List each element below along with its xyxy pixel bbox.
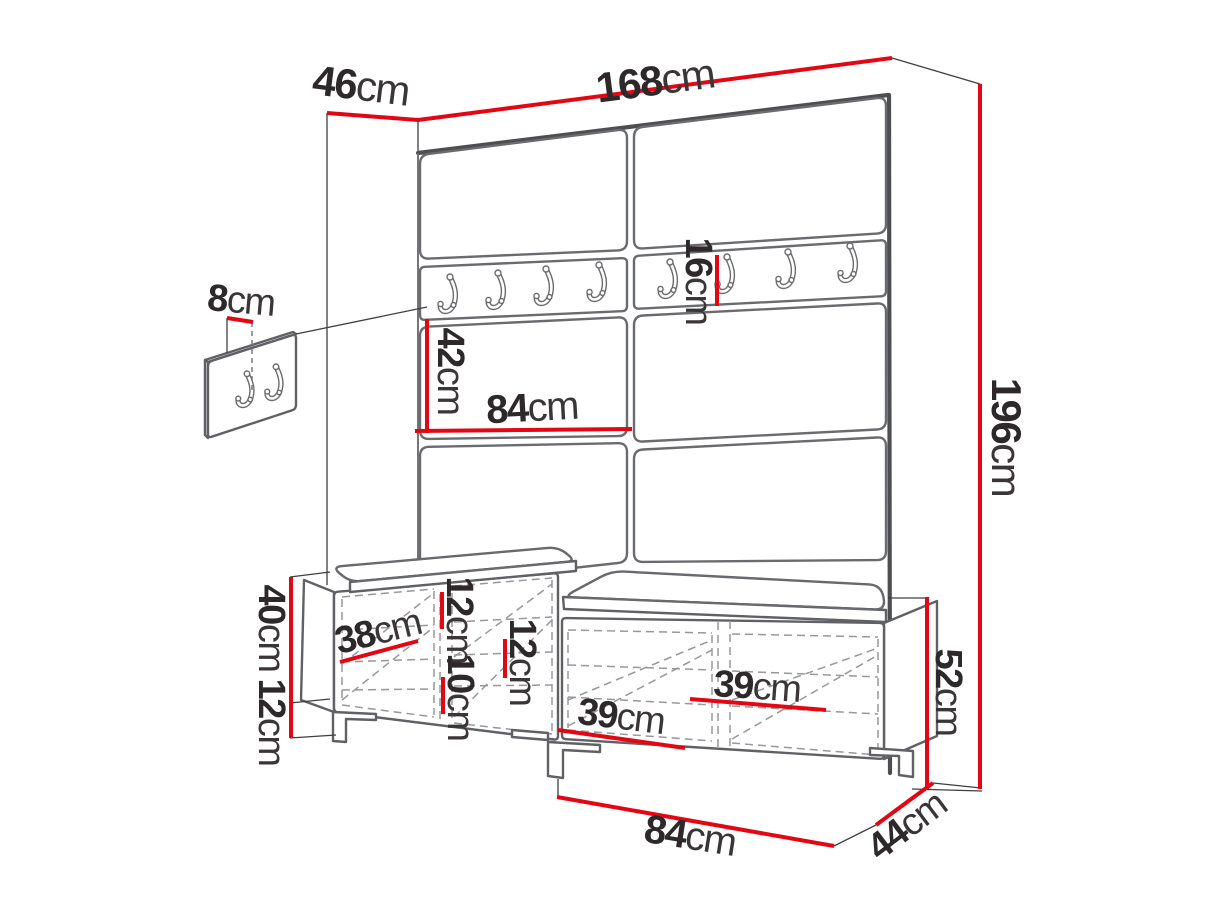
dimension-label: 10cm	[439, 654, 481, 741]
dimension-label: 84cm	[485, 384, 579, 433]
dimension-label: 12cm	[438, 577, 480, 664]
dimension-shelf-spacing-12-left: 12cm	[438, 577, 480, 664]
dimension-shelf-spacing-10: 10cm	[439, 654, 481, 741]
dimension-label: 16cm	[677, 238, 719, 325]
dimension-label: 12cm	[250, 679, 292, 766]
furniture-dimension-diagram: 168cm46cm196cm16cm42cm84cm8cm40cm12cm38c…	[0, 0, 1214, 911]
dimension-wall-hook-spacing: 8cm	[206, 277, 277, 325]
dimension-panel-depth: 46cm	[310, 56, 418, 120]
dimension-label: 44cm	[860, 783, 955, 869]
dimension-leg-height: 12cm	[250, 679, 292, 766]
dimension-label: 39cm	[712, 663, 802, 711]
dimension-label: 84cm	[641, 807, 739, 865]
shoe-bench	[301, 548, 937, 778]
wall-hook-detail-panel	[205, 307, 427, 438]
upholstered-panels	[420, 98, 886, 584]
dimension-label: 42cm	[429, 328, 471, 415]
dimension-panel-height: 196cm	[980, 84, 1031, 789]
dimension-label: 196cm	[984, 378, 1031, 497]
dimension-hook-rail-height: 16cm	[677, 238, 719, 325]
dimension-label: 46cm	[310, 56, 412, 114]
dimension-bench-depth: 44cm	[860, 783, 955, 869]
dimension-label: 40cm	[250, 585, 292, 672]
dimension-label: 168cm	[593, 49, 717, 111]
dimension-shelf-spacing-12-center: 12cm	[501, 619, 543, 706]
dimension-bench-width: 84cm	[557, 797, 834, 865]
dimension-label: 12cm	[501, 619, 543, 706]
dimension-label: 8cm	[206, 277, 277, 325]
dimension-label: 52cm	[927, 649, 969, 736]
